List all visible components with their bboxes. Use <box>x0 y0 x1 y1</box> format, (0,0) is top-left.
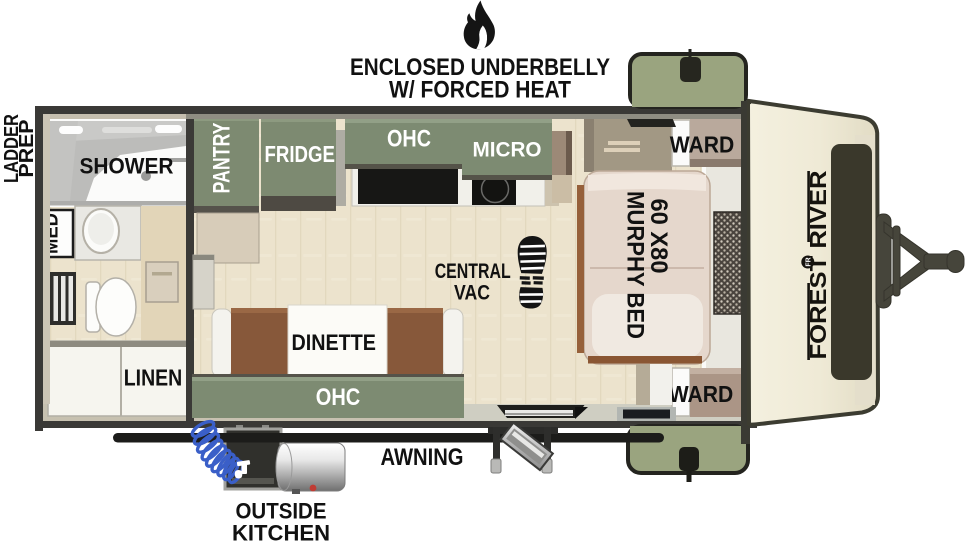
svg-text:LINEN: LINEN <box>124 365 183 391</box>
svg-text:MURPHY BED: MURPHY BED <box>621 191 648 339</box>
svg-text:AWNING: AWNING <box>381 444 464 471</box>
svg-text:W/ FORCED HEAT: W/ FORCED HEAT <box>389 77 571 104</box>
svg-text:MICRO: MICRO <box>473 138 542 162</box>
svg-text:CENTRAL: CENTRAL <box>435 260 511 283</box>
svg-text:VAC: VAC <box>454 282 490 305</box>
svg-text:FRIDGE: FRIDGE <box>264 141 335 167</box>
svg-text:OHC: OHC <box>316 384 361 411</box>
svg-text:OHC: OHC <box>387 126 431 153</box>
svg-text:KITCHEN: KITCHEN <box>232 521 330 542</box>
svg-text:DINETTE: DINETTE <box>291 330 376 355</box>
svg-text:PANTRY: PANTRY <box>209 123 236 194</box>
svg-text:SHOWER: SHOWER <box>80 154 174 179</box>
svg-text:LADDERPREP: LADDERPREP <box>1 114 38 183</box>
svg-text:WARD: WARD <box>669 381 734 407</box>
svg-text:WARD: WARD <box>670 132 735 158</box>
svg-text:FR: FR <box>805 257 812 266</box>
